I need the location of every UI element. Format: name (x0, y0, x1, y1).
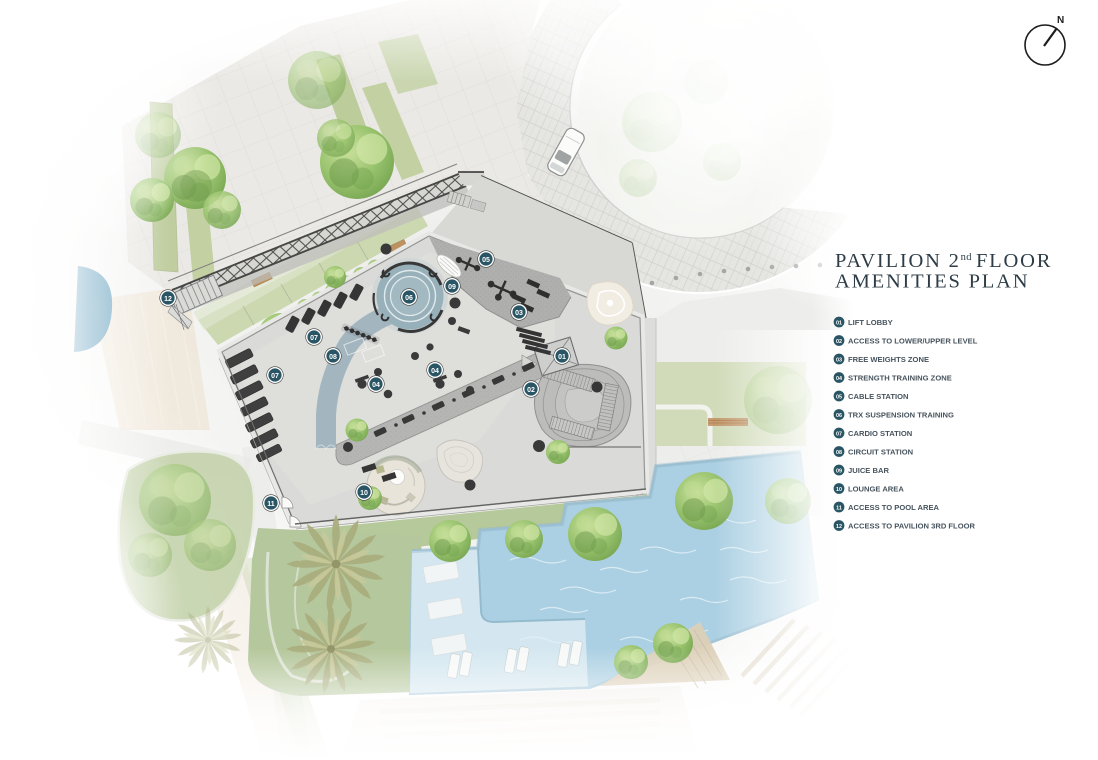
svg-text:09: 09 (448, 284, 456, 291)
svg-text:PAVILION 2ndFLOOR: PAVILION 2ndFLOOR (835, 250, 1052, 272)
svg-text:JUICE BAR: JUICE BAR (848, 466, 889, 475)
svg-text:STRENGTH TRAINING ZONE: STRENGTH TRAINING ZONE (848, 374, 952, 383)
svg-text:ACCESS TO POOL AREA: ACCESS TO POOL AREA (848, 503, 940, 512)
svg-text:04: 04 (431, 368, 439, 375)
svg-text:CABLE STATION: CABLE STATION (848, 392, 908, 401)
svg-text:06: 06 (836, 413, 842, 419)
svg-text:03: 03 (836, 358, 842, 364)
svg-text:TRX SUSPENSION TRAINING: TRX SUSPENSION TRAINING (848, 411, 954, 420)
svg-text:02: 02 (836, 339, 842, 345)
svg-text:04: 04 (372, 382, 380, 389)
svg-text:AMENITIES PLAN: AMENITIES PLAN (835, 271, 1029, 293)
svg-text:01: 01 (558, 354, 566, 361)
svg-text:07: 07 (836, 432, 842, 438)
svg-text:10: 10 (836, 487, 842, 493)
svg-text:07: 07 (310, 335, 318, 342)
svg-text:07: 07 (271, 373, 279, 380)
svg-text:05: 05 (836, 395, 842, 401)
svg-text:01: 01 (836, 321, 842, 327)
svg-text:08: 08 (329, 354, 337, 361)
svg-text:12: 12 (836, 524, 842, 530)
svg-text:12: 12 (164, 296, 172, 303)
svg-text:N: N (1057, 15, 1064, 26)
svg-text:10: 10 (360, 490, 368, 497)
svg-text:CARDIO STATION: CARDIO STATION (848, 429, 912, 438)
svg-text:05: 05 (482, 257, 490, 264)
svg-text:LOUNGE AREA: LOUNGE AREA (848, 485, 904, 494)
svg-text:11: 11 (267, 501, 275, 508)
svg-text:CIRCUIT STATION: CIRCUIT STATION (848, 448, 913, 457)
svg-text:03: 03 (515, 310, 523, 317)
svg-text:06: 06 (405, 295, 413, 302)
svg-text:LIFT LOBBY: LIFT LOBBY (848, 318, 893, 327)
svg-text:FREE WEIGHTS ZONE: FREE WEIGHTS ZONE (848, 355, 929, 364)
svg-text:ACCESS TO PAVILION 3RD FLOOR: ACCESS TO PAVILION 3RD FLOOR (848, 522, 976, 531)
svg-text:11: 11 (836, 506, 842, 512)
svg-text:02: 02 (527, 387, 535, 394)
svg-text:09: 09 (836, 469, 842, 475)
svg-text:ACCESS TO LOWER/UPPER LEVEL: ACCESS TO LOWER/UPPER LEVEL (848, 337, 978, 346)
svg-text:04: 04 (836, 376, 842, 382)
svg-text:08: 08 (836, 450, 842, 456)
